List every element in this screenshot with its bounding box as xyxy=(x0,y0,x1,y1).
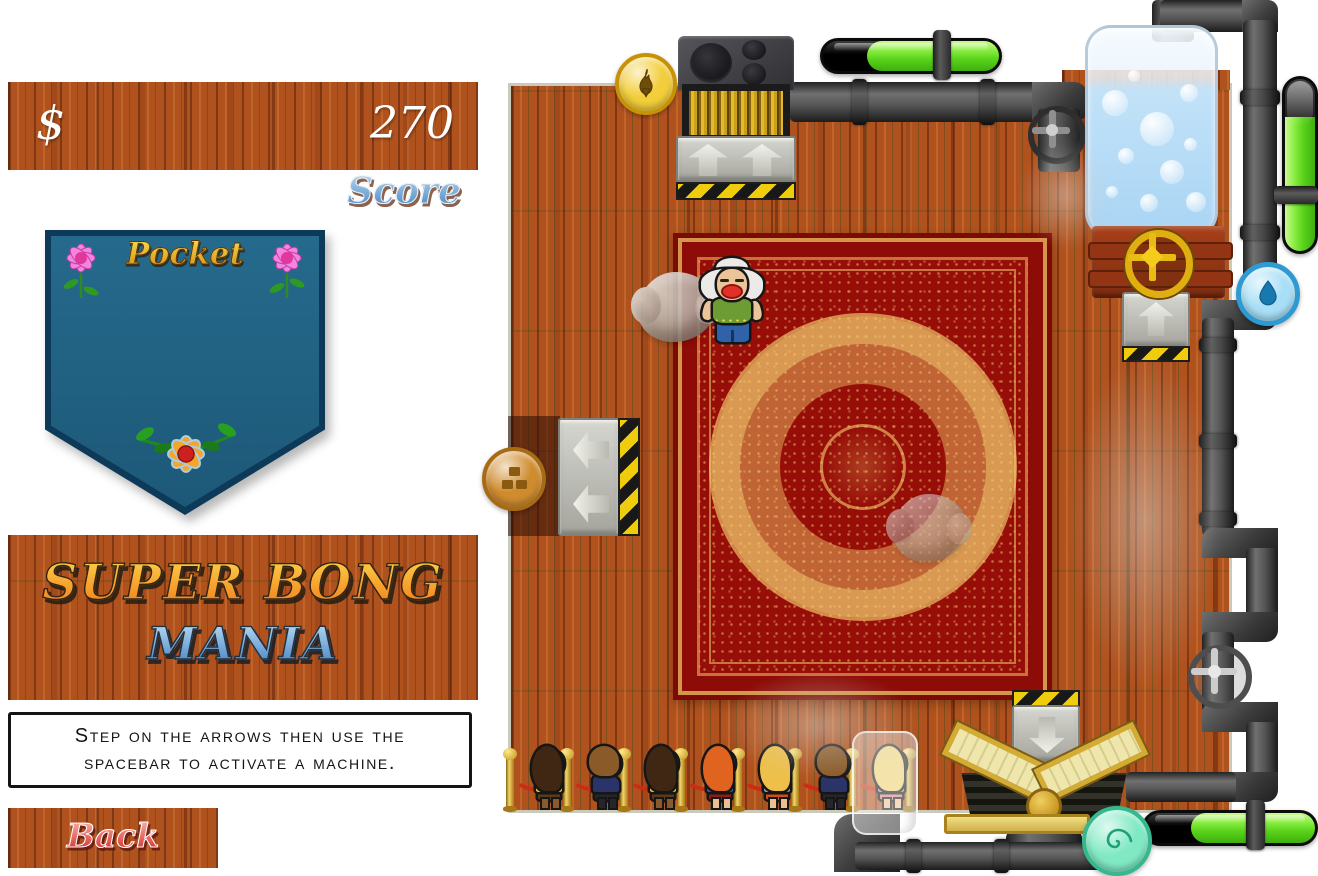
granny-pants-seam xyxy=(731,330,734,342)
furnace-step-pad[interactable] xyxy=(676,136,796,182)
instruction-line1: Step on the arrows then use the xyxy=(11,723,469,750)
eye-icon xyxy=(735,279,744,282)
press-gauge xyxy=(1142,810,1318,846)
title-line2: MANIA xyxy=(8,617,478,670)
tank-gauge xyxy=(1282,76,1318,254)
carpet-medallion xyxy=(709,313,1017,621)
customer-leg xyxy=(610,799,616,808)
furnace-gauge xyxy=(820,38,1002,74)
valve-wheel-gold[interactable] xyxy=(1125,230,1193,298)
arrow-left-icon xyxy=(573,485,609,523)
lips-icon xyxy=(723,286,741,297)
queue-customer-3 xyxy=(646,746,684,810)
eye-icon xyxy=(720,279,729,282)
pipe-ring xyxy=(980,79,995,125)
customer-leg xyxy=(656,799,662,808)
customer-hair xyxy=(646,746,676,791)
customer-leg xyxy=(542,799,548,808)
granny-character xyxy=(701,260,763,350)
pocket-panel: Pocket xyxy=(45,230,325,515)
game-screen: { "hud": { "currency_symbol": "$", "scor… xyxy=(0,0,1318,872)
pipe-ring xyxy=(1240,225,1280,240)
furnace-machine[interactable] xyxy=(676,36,796,200)
customer-leg xyxy=(553,799,559,808)
back-button-label: Back xyxy=(8,816,218,855)
title-line1: SUPER BONG xyxy=(8,553,478,611)
gauge-strap xyxy=(1274,186,1318,204)
burner-large xyxy=(690,43,732,83)
customer-hair xyxy=(703,746,733,791)
pipe-right-vertical-3 xyxy=(1246,548,1278,622)
furnace-top-box xyxy=(678,36,794,90)
score-label: Score xyxy=(330,170,478,212)
orange-flower-icon xyxy=(111,408,261,488)
customer-leg xyxy=(770,799,776,808)
pipe-ring xyxy=(1240,90,1280,105)
pink-flower-left-icon xyxy=(53,236,109,306)
steam-haze xyxy=(1020,140,1110,250)
pipe-ring xyxy=(906,839,921,873)
stanchion-post xyxy=(506,756,514,810)
bricks-coin-badge xyxy=(482,447,546,511)
arrow-left-icon xyxy=(573,431,609,469)
customer-hair xyxy=(589,746,619,776)
customer-leg xyxy=(781,799,787,808)
back-button[interactable]: Back xyxy=(8,808,218,868)
press-base-plate xyxy=(944,814,1090,834)
instruction-line2: spacebar to activate a machine. xyxy=(11,750,469,777)
money-value: 270 xyxy=(370,98,454,149)
spiral-icon xyxy=(1100,824,1134,858)
granny-top xyxy=(713,299,751,323)
burner-small-2 xyxy=(742,63,766,85)
gauge-strap xyxy=(933,30,951,80)
furnace-grill xyxy=(682,84,790,142)
pipe-top-horizontal xyxy=(790,82,1050,122)
arrow-up-icon xyxy=(1138,302,1174,336)
customer-leg xyxy=(599,799,605,808)
queue-customer-4 xyxy=(703,746,741,810)
customer-leg xyxy=(838,799,844,808)
left-pad-hazard-stripe xyxy=(618,418,640,536)
bricks-icon xyxy=(498,464,530,494)
pink-flower-right-icon xyxy=(259,236,315,306)
water-badge xyxy=(1236,262,1300,326)
customer-leg xyxy=(827,799,833,808)
gauge-strap xyxy=(1246,800,1265,850)
water-drop-icon xyxy=(1255,279,1281,309)
title-banner: SUPER BONG MANIA xyxy=(8,535,478,700)
customer-hair xyxy=(532,746,562,791)
tank-step-pad[interactable] xyxy=(1122,292,1190,348)
money-banner: $ 270 xyxy=(8,82,478,170)
left-machine-pad[interactable] xyxy=(558,418,644,536)
arrow-up-icon xyxy=(688,144,728,176)
burner-small-1 xyxy=(742,40,766,60)
swirl-badge xyxy=(1082,806,1152,876)
customer-leg xyxy=(713,799,719,808)
steam-haze xyxy=(1070,350,1220,690)
pipe-ring xyxy=(852,79,867,125)
customer-leg xyxy=(667,799,673,808)
flame-coin-badge xyxy=(615,53,677,115)
steam-haze xyxy=(720,670,920,780)
furnace-hazard-stripe xyxy=(676,182,796,200)
queue-customer-1 xyxy=(532,746,570,810)
currency-symbol: $ xyxy=(36,96,65,150)
valve-wheel-light[interactable] xyxy=(1188,645,1252,709)
queue-customer-2 xyxy=(589,746,627,810)
arrow-up-icon xyxy=(742,144,782,176)
instruction-box: Step on the arrows then use the spacebar… xyxy=(8,712,472,788)
granny-face xyxy=(717,269,747,300)
arrow-down-icon xyxy=(1029,717,1065,753)
customer-top xyxy=(593,775,619,792)
flame-icon xyxy=(632,68,660,100)
customer-leg xyxy=(724,799,730,808)
